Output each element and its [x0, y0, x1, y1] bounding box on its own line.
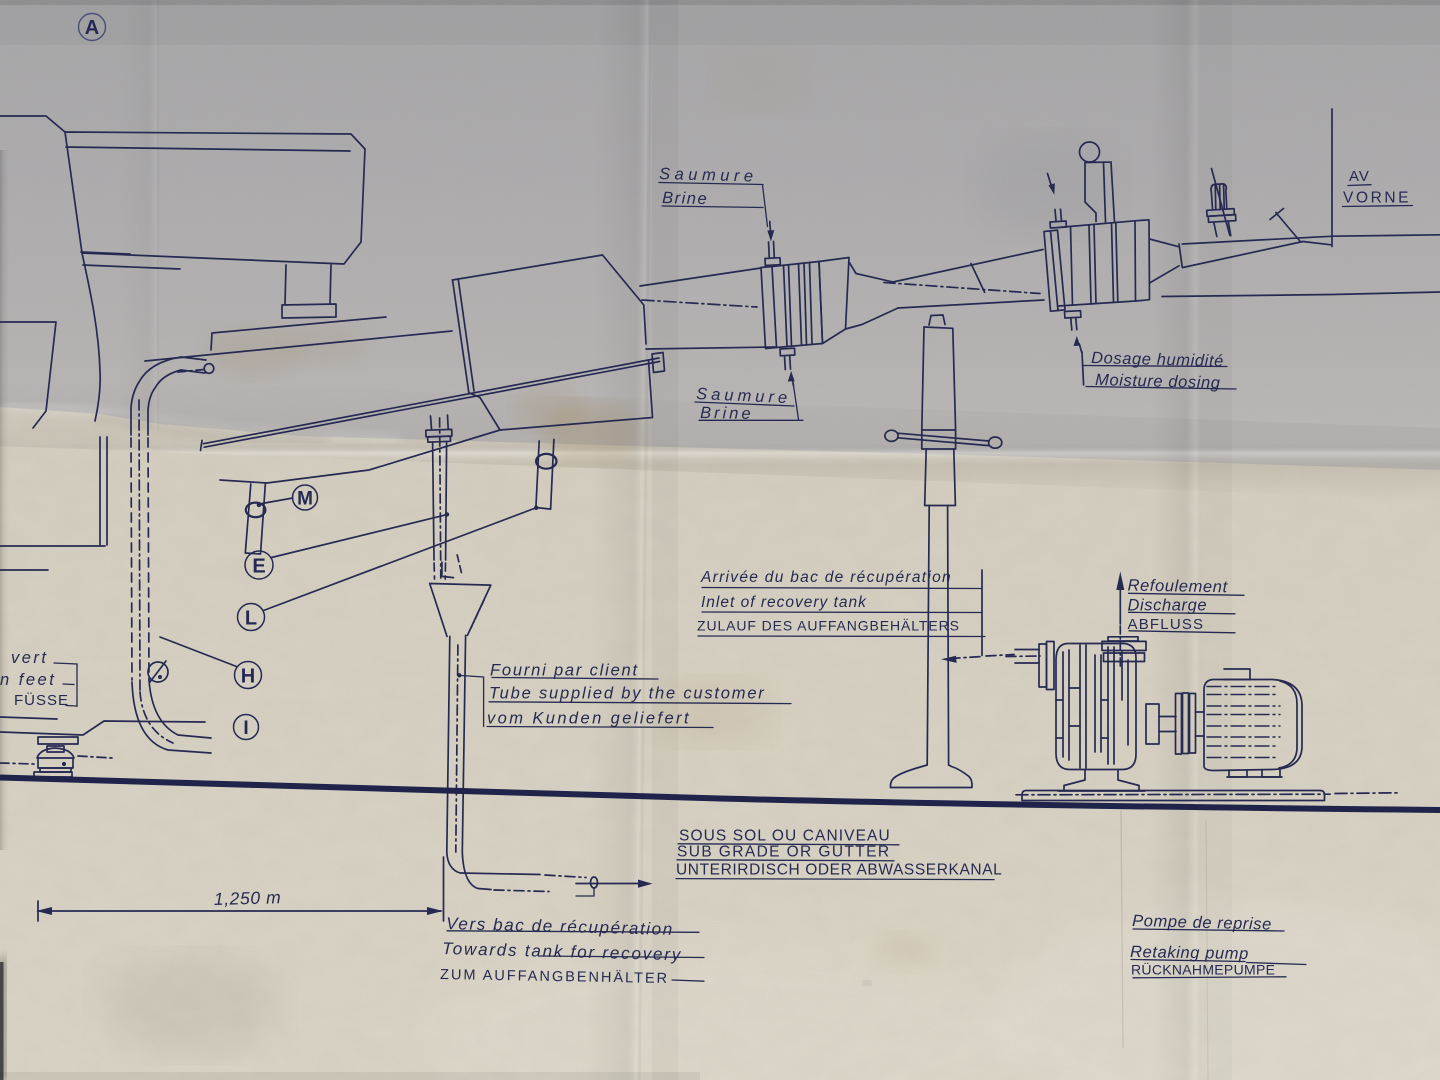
svg-text:ZULAUF DES AUFFANGBEHÄLTERS: ZULAUF DES AUFFANGBEHÄLTERS	[697, 618, 960, 634]
svg-text:n feet: n feet	[0, 671, 56, 689]
svg-text:VORNE: VORNE	[1343, 190, 1411, 207]
svg-text:A: A	[85, 17, 99, 39]
svg-text:vert: vert	[11, 649, 49, 667]
svg-text:Arrivée du bac de récupération: Arrivée du bac de récupération	[700, 569, 952, 586]
svg-text:FÜSSE: FÜSSE	[14, 691, 69, 709]
svg-text:UNTERIRDISCH ODER ABWASSERKANA: UNTERIRDISCH ODER ABWASSERKANAL	[676, 862, 1002, 879]
svg-text:vom Kunden geliefert: vom Kunden geliefert	[487, 710, 691, 728]
svg-text:E: E	[252, 556, 265, 578]
svg-text:M: M	[297, 489, 313, 510]
svg-text:1,250 m: 1,250 m	[214, 887, 282, 909]
svg-text:Inlet of recovery tank: Inlet of recovery tank	[701, 594, 867, 611]
svg-text:Moisture dosing: Moisture dosing	[1095, 371, 1221, 392]
svg-text:H: H	[241, 666, 255, 688]
svg-text:Fourni par client: Fourni par client	[490, 662, 639, 680]
svg-text:Tube supplied by the customer: Tube supplied by the customer	[489, 685, 766, 703]
svg-text:SOUS SOL OU CANIVEAU: SOUS SOL OU CANIVEAU	[679, 828, 891, 845]
svg-text:Discharge: Discharge	[1128, 597, 1208, 615]
svg-text:AV: AV	[1349, 168, 1370, 185]
svg-text:L: L	[245, 608, 257, 630]
svg-text:Brine: Brine	[662, 189, 708, 208]
svg-text:Dosage humidité: Dosage humidité	[1091, 349, 1224, 370]
svg-text:I: I	[243, 718, 248, 739]
svg-text:SUB GRADE OR GUTTER: SUB GRADE OR GUTTER	[677, 844, 890, 861]
